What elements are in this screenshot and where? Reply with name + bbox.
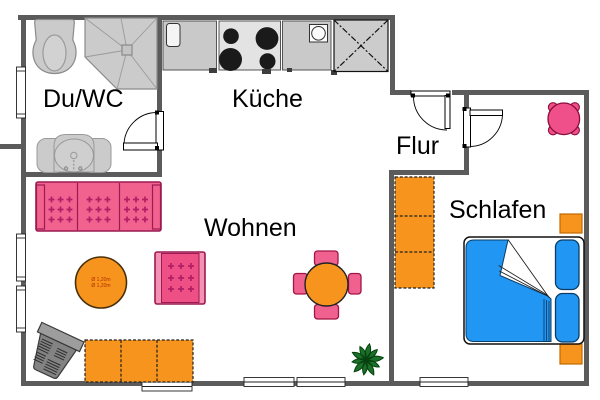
svg-text:Ø 1,20m: Ø 1,20m [91,283,110,289]
